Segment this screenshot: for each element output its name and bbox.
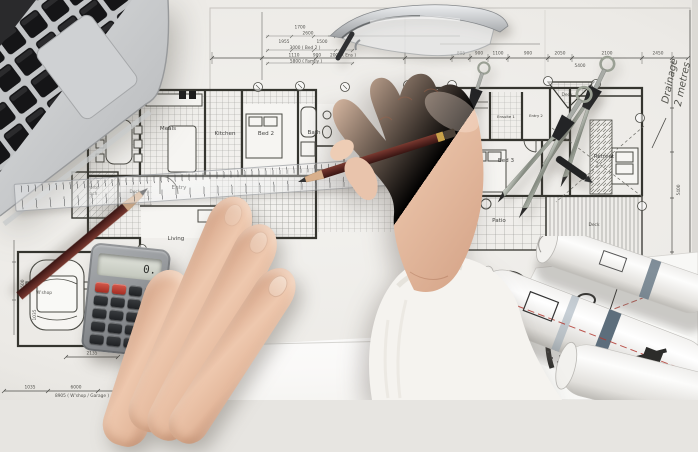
right-arm (0, 0, 698, 400)
architect-desk-scene: 805 900 1100 900 2050 2100 2450 5400 170… (0, 0, 698, 400)
